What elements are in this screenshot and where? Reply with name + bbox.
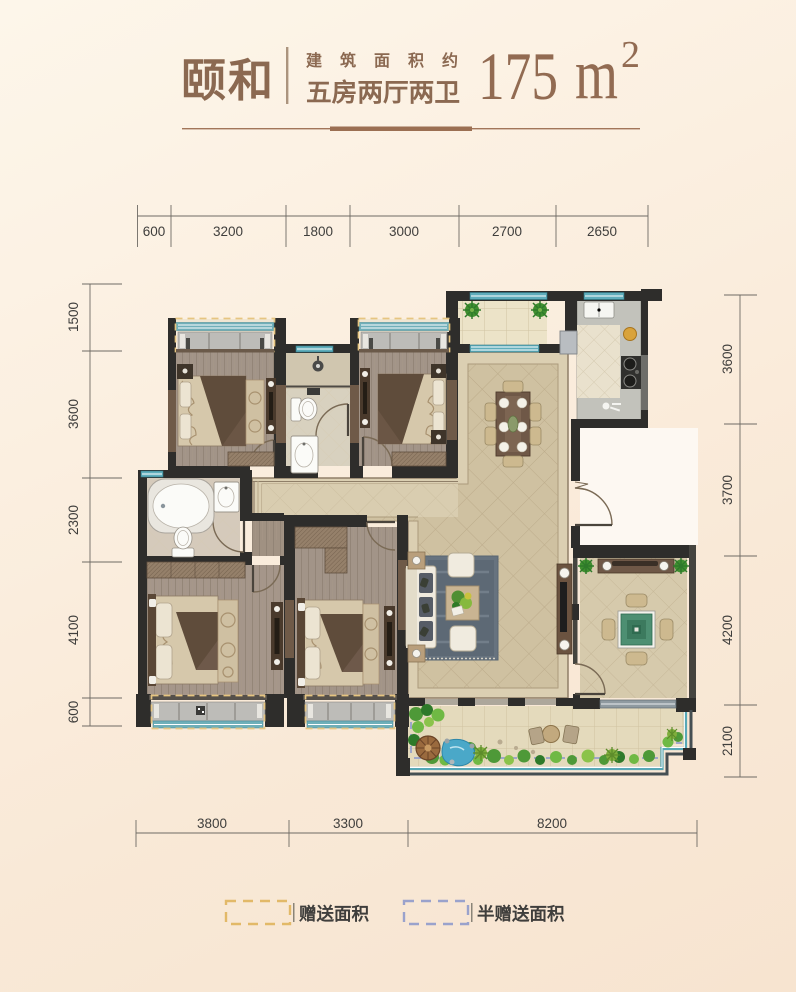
svg-text:4200: 4200 — [720, 615, 735, 645]
svg-text:3600: 3600 — [720, 344, 735, 374]
svg-text:600: 600 — [143, 224, 166, 239]
svg-text:赠送面积: 赠送面积 — [299, 904, 369, 924]
svg-text:600: 600 — [66, 701, 81, 724]
svg-text:建筑面积约: 建筑面积约 — [306, 51, 458, 70]
svg-text:3600: 3600 — [66, 399, 81, 429]
svg-text:m: m — [575, 34, 618, 114]
svg-text:1500: 1500 — [66, 302, 81, 332]
svg-text:2100: 2100 — [720, 726, 735, 756]
svg-text:2300: 2300 — [66, 505, 81, 535]
svg-text:3000: 3000 — [389, 224, 419, 239]
svg-text:8200: 8200 — [537, 816, 567, 831]
svg-text:2700: 2700 — [492, 224, 522, 239]
svg-text:2: 2 — [621, 34, 640, 76]
svg-text:4100: 4100 — [66, 615, 81, 645]
svg-text:3800: 3800 — [197, 816, 227, 831]
svg-text:1800: 1800 — [303, 224, 333, 239]
svg-text:半赠送面积: 半赠送面积 — [477, 904, 565, 924]
svg-text:3200: 3200 — [213, 224, 243, 239]
svg-text:颐和: 颐和 — [181, 55, 275, 106]
svg-text:五房两厅两卫: 五房两厅两卫 — [306, 78, 460, 107]
svg-text:3700: 3700 — [720, 475, 735, 505]
svg-text:3300: 3300 — [333, 816, 363, 831]
svg-text:2650: 2650 — [587, 224, 617, 239]
svg-text:175: 175 — [478, 38, 558, 114]
